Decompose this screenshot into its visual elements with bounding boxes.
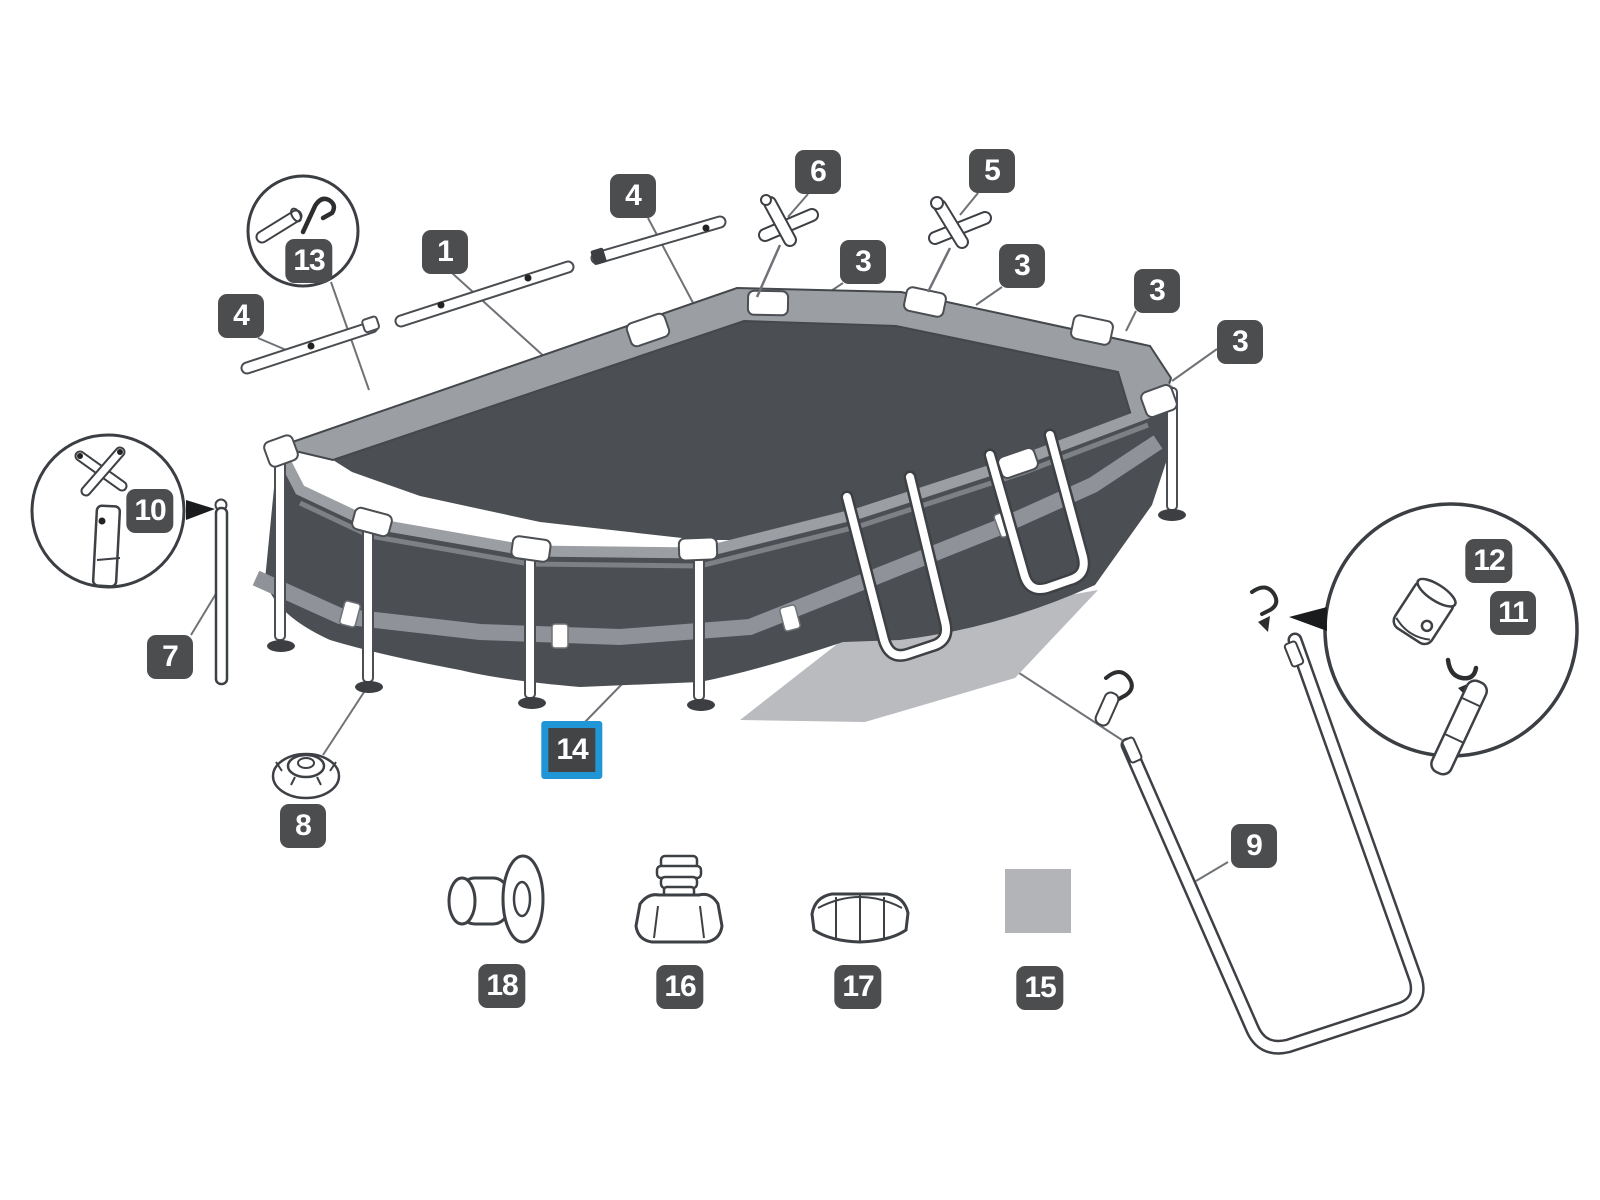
vertical-leg-7	[216, 500, 228, 685]
part-label-4-top[interactable]: 4	[610, 174, 656, 218]
part-label-3-a[interactable]: 3	[840, 240, 886, 284]
part-label-14-selected[interactable]: 14	[541, 721, 602, 779]
part-label-6[interactable]: 6	[795, 150, 841, 194]
part-label-7[interactable]: 7	[147, 635, 193, 679]
part-label-16[interactable]: 16	[656, 965, 703, 1009]
part-label-1[interactable]: 1	[422, 230, 468, 274]
brace-clip-left	[1094, 672, 1143, 763]
callout-arrow	[186, 500, 215, 520]
parts-diagram: 1 4 4 13 6 5 3 3 3 3 10 7 8 14 9 12 11 1…	[0, 0, 1600, 1200]
part-label-11[interactable]: 11	[1490, 591, 1536, 635]
t-connector-6	[757, 195, 812, 297]
part-label-9[interactable]: 9	[1231, 824, 1277, 868]
part-label-5[interactable]: 5	[969, 149, 1015, 193]
part-label-12[interactable]: 12	[1465, 539, 1512, 583]
drain-valve-16-icon	[636, 856, 722, 942]
callout-arrow	[1289, 607, 1327, 631]
repair-patch-15-icon	[1005, 869, 1071, 933]
part-label-15[interactable]: 15	[1016, 966, 1063, 1010]
callout-circle-10	[32, 435, 215, 587]
strainer-18-icon	[449, 856, 543, 942]
brace-clip-right	[1252, 587, 1304, 667]
part-label-3-c[interactable]: 3	[1134, 269, 1180, 313]
leg-base-8	[273, 754, 339, 798]
part-label-3-d[interactable]: 3	[1217, 320, 1263, 364]
beam-4-top	[590, 222, 720, 265]
part-label-4-left[interactable]: 4	[218, 294, 264, 338]
part-label-3-b[interactable]: 3	[999, 244, 1045, 288]
part-label-18[interactable]: 18	[478, 964, 525, 1008]
leg-sleeve-icon	[93, 505, 120, 586]
part-label-10[interactable]: 10	[126, 489, 173, 533]
part-label-13[interactable]: 13	[285, 239, 332, 283]
part-label-8[interactable]: 8	[280, 804, 326, 848]
part-label-17[interactable]: 17	[834, 965, 881, 1009]
beam-1	[401, 267, 568, 321]
valve-cap-17-icon	[812, 894, 908, 942]
pool-frame	[256, 286, 1186, 722]
t-connector-5	[928, 197, 985, 292]
